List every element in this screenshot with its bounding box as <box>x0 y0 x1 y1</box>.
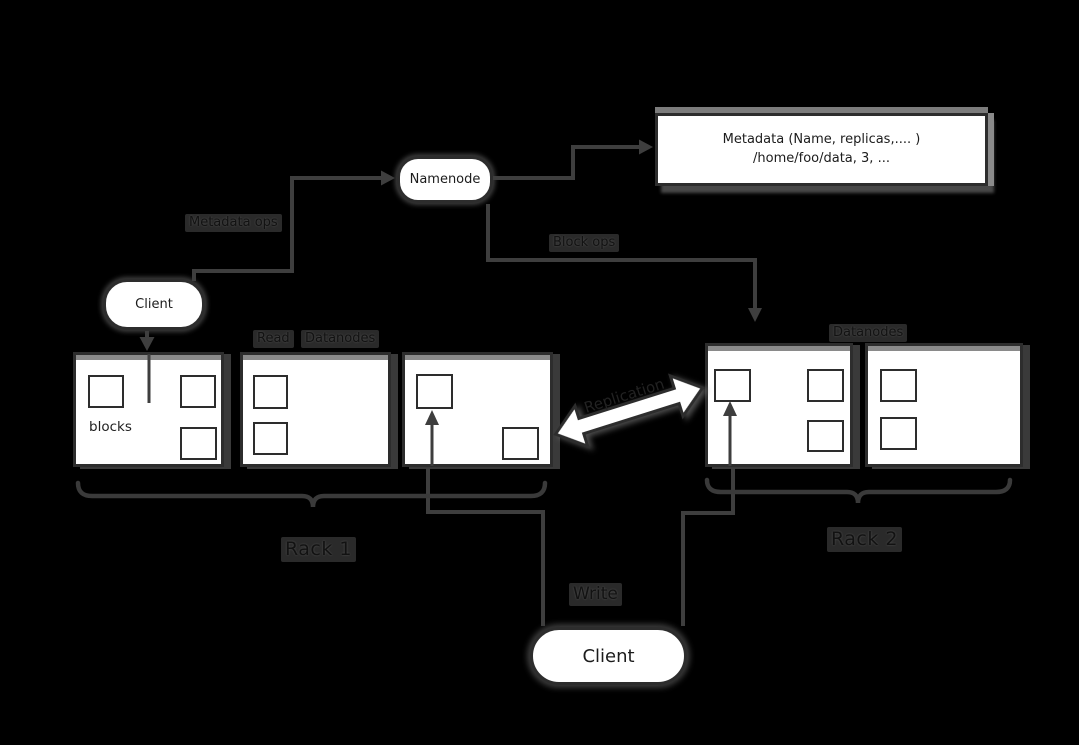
block-square <box>416 374 453 409</box>
metadata-line2: /home/foo/data, 3, ... <box>753 150 890 169</box>
rack1-datanode-3 <box>402 352 553 467</box>
client-write-label: Client <box>582 646 634 667</box>
replication-arrow-shape <box>549 368 709 454</box>
write-path-left <box>428 468 543 626</box>
hdfs-architecture-diagram: Metadata (Name, replicas,.... ) /home/fo… <box>0 0 1079 745</box>
block-ops-arrowhead <box>748 308 762 322</box>
block-square <box>180 375 216 408</box>
metadata-arrowhead <box>639 140 653 155</box>
block-square <box>502 427 539 460</box>
block-square <box>180 427 217 460</box>
client-node-read: Client <box>103 279 205 330</box>
rack1-datanode-2 <box>240 352 391 467</box>
rack1-label: Rack 1 <box>281 537 356 562</box>
replication-label: Replication <box>582 375 667 417</box>
rack2-datanode-1 <box>705 343 853 467</box>
block-ops-line <box>488 204 755 308</box>
client-read-label: Client <box>135 297 173 312</box>
block-square <box>253 422 288 455</box>
metadata-box: Metadata (Name, replicas,.... ) /home/fo… <box>655 113 988 186</box>
metadata-line1: Metadata (Name, replicas,.... ) <box>723 131 921 150</box>
write-path-right <box>683 468 733 626</box>
block-square <box>880 369 917 402</box>
rack2-label: Rack 2 <box>827 527 902 552</box>
namenode-to-metadata-line <box>493 147 639 178</box>
rack2-datanode-2 <box>865 343 1023 467</box>
read-label: Read <box>253 330 294 348</box>
metadata-ops-arrowhead <box>381 171 395 186</box>
namenode-node: Namenode <box>397 156 493 203</box>
block-ops-label: Block ops <box>549 234 619 252</box>
blocks-label: blocks <box>89 419 132 435</box>
datanodes-rack2-label: Datanodes <box>829 324 907 342</box>
read-arrowhead <box>140 337 155 351</box>
block-square <box>88 375 124 408</box>
block-square <box>253 375 288 409</box>
block-square <box>714 369 751 402</box>
datanodes-rack1-label: Datanodes <box>301 330 379 348</box>
namenode-label: Namenode <box>410 172 481 187</box>
metadata-ops-label: Metadata ops <box>185 214 282 232</box>
client-node-write: Client <box>530 627 687 685</box>
block-square <box>880 417 917 450</box>
rack1-datanode-1: blocks <box>73 352 224 467</box>
block-square <box>807 369 844 402</box>
rack2-bracket <box>707 480 1010 503</box>
replication-arrow: Replication <box>548 364 709 454</box>
write-label: Write <box>569 583 622 606</box>
block-square <box>807 420 844 452</box>
rack1-bracket <box>78 483 545 507</box>
